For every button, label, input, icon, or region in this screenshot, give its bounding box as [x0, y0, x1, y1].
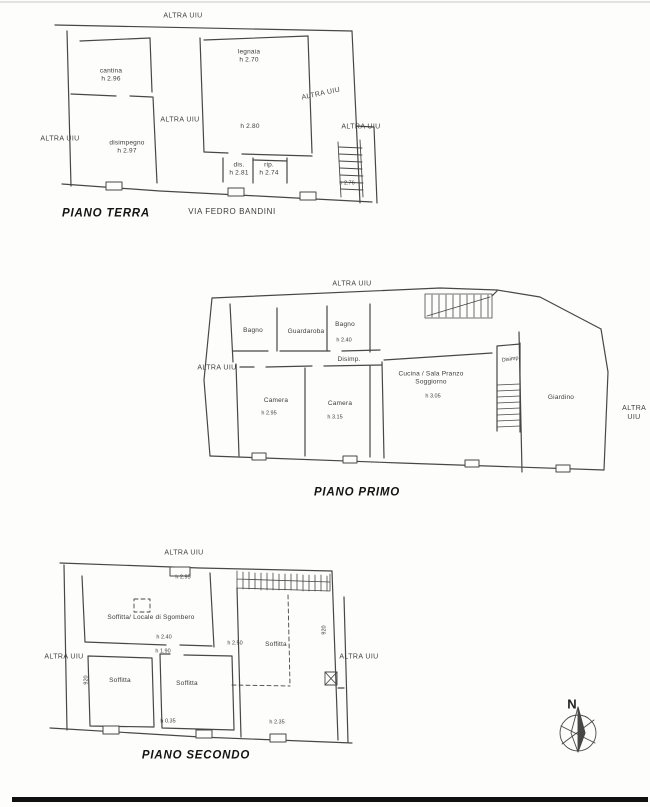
adjacent-unit-label: ALTRA UIU: [163, 11, 202, 20]
room-label-soffitta-2: Soffitta: [176, 680, 198, 688]
height-label-stairs: h 2.76: [339, 180, 354, 187]
bottom-scan-bar: [12, 797, 648, 802]
room-label-disimpegno: disimpegno h 2.97: [109, 140, 144, 157]
area-label-giardino: Giardino: [548, 394, 574, 402]
room-label-legnaia: legnaia h 2.70: [238, 49, 260, 66]
adjacent-unit-label: ALTRA UIU: [622, 404, 646, 422]
plan-drawing: [0, 0, 650, 807]
room-label-bagno-2: Bagno: [335, 321, 355, 329]
street-label: VIA FEDRO BANDINI: [188, 207, 276, 217]
adjacent-unit-label: ALTRA UIU: [341, 122, 380, 131]
room-label-soffitta-sgombero: Soffitta/ Locale di Sgombero: [107, 614, 194, 622]
adjacent-unit-label: ALTRA UIU: [332, 279, 371, 288]
height-label: h 2.50: [227, 640, 242, 647]
room-label-disimp-1: Disimp.: [337, 356, 360, 364]
height-label: h 2.80: [240, 123, 259, 131]
plan-title-terra: PIANO TERRA: [62, 207, 150, 222]
room-label-soffitta-1: Soffitta: [109, 677, 131, 685]
adjacent-unit-label: ALTRA UIU: [40, 134, 79, 143]
floor-plan-sheet: ALTRA UIU cantina h 2.96 disimpegno h 2.…: [0, 0, 650, 807]
height-label: h 3.15: [327, 414, 342, 421]
room-label-cucina: Cucina / Sala Pranzo Soggiorno: [398, 371, 463, 388]
height-label: h 2.35: [269, 719, 284, 726]
compass-north-label: N: [567, 697, 577, 714]
compass-rose: [560, 707, 596, 752]
room-label-soffitta-3: Soffitta: [265, 641, 287, 649]
room-label-rip: rip. h 2.74: [259, 162, 278, 179]
height-label: h 2.95: [175, 574, 190, 581]
adjacent-unit-label: ALTRA UIU: [339, 652, 378, 661]
plan-title-secondo: PIANO SECONDO: [142, 749, 250, 764]
room-label-cantina: cantina h 2.96: [100, 68, 122, 85]
plan-secondo-walls: [50, 563, 352, 743]
room-label-dis: dis. h 2.81: [229, 162, 248, 179]
height-label: h 2.95: [261, 410, 276, 417]
room-label-bagno-1: Bagno: [243, 327, 263, 335]
height-label: h 1.90: [155, 648, 170, 655]
dimension-label: 920: [321, 625, 328, 634]
room-label-camera-1: Camera: [264, 397, 288, 405]
adjacent-unit-label: ALTRA UIU: [197, 363, 236, 372]
adjacent-unit-label: ALTRA UIU: [44, 652, 83, 661]
dimension-label: 920: [83, 675, 90, 684]
adjacent-unit-label: ALTRA UIU: [164, 548, 203, 557]
adjacent-unit-label: ALTRA UIU: [160, 115, 199, 124]
height-label: h 2.40: [336, 337, 351, 344]
room-label-camera-2: Camera: [328, 400, 352, 408]
room-label-guardaroba: Guardaroba: [288, 328, 325, 336]
plan-title-primo: PIANO PRIMO: [314, 486, 400, 501]
height-label: h 2.40: [156, 634, 171, 641]
plan-terra-walls: [55, 25, 377, 203]
height-label: h 0.35: [160, 718, 175, 725]
height-label: h 3.05: [425, 393, 440, 400]
